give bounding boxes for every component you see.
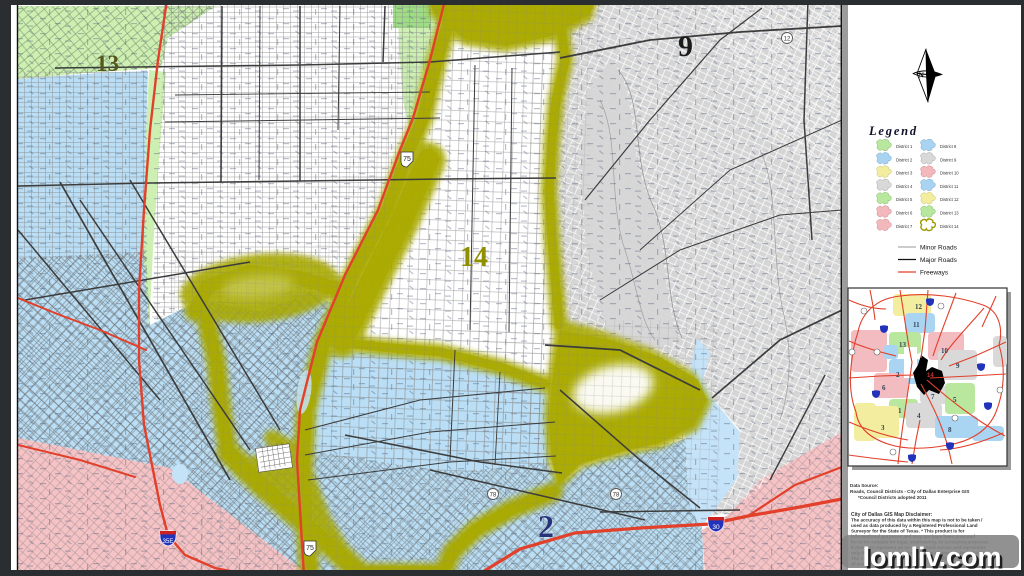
- svg-text:78: 78: [490, 493, 497, 499]
- svg-text:used as data produced by a Reg: used as data produced by a Registered Pr…: [851, 523, 978, 528]
- svg-text:13: 13: [899, 341, 907, 349]
- svg-text:2: 2: [896, 371, 900, 379]
- svg-text:District 4: District 4: [896, 184, 913, 189]
- svg-text:35E: 35E: [163, 539, 174, 545]
- svg-text:8: 8: [948, 426, 952, 434]
- svg-text:12: 12: [915, 303, 923, 311]
- svg-text:Surveyor for the State of Texa: Surveyor for the State of Texas. * This …: [851, 529, 965, 534]
- svg-text:Legend: Legend: [868, 124, 918, 138]
- svg-text:District 12: District 12: [940, 197, 959, 202]
- svg-text:District 7: District 7: [896, 224, 913, 229]
- svg-text:10: 10: [941, 347, 949, 355]
- svg-text:District 2: District 2: [896, 157, 913, 162]
- svg-text:14: 14: [460, 242, 488, 273]
- svg-text:13: 13: [96, 51, 119, 76]
- svg-text:9: 9: [678, 30, 693, 63]
- svg-text:District 3: District 3: [896, 171, 913, 176]
- svg-text:The accuracy of this data with: The accuracy of this data within this ma…: [851, 518, 983, 523]
- svg-text:12: 12: [784, 37, 791, 43]
- svg-text:District 1: District 1: [896, 144, 913, 149]
- svg-text:N: N: [919, 71, 925, 80]
- svg-text:11: 11: [913, 321, 920, 329]
- svg-text:Major Roads: Major Roads: [920, 257, 958, 264]
- svg-text:District 14: District 14: [940, 224, 959, 229]
- svg-text:District 8: District 8: [940, 144, 957, 149]
- svg-text:1: 1: [898, 407, 902, 415]
- svg-text:District 10: District 10: [940, 171, 959, 176]
- svg-text:75: 75: [403, 156, 411, 163]
- svg-text:District 6: District 6: [896, 211, 913, 216]
- svg-text:2: 2: [538, 508, 554, 544]
- svg-text:*Council Districts adopted 201: *Council Districts adopted 2011: [858, 495, 927, 500]
- svg-text:Data Source:: Data Source:: [850, 483, 879, 488]
- svg-text:Freeways: Freeways: [920, 270, 949, 277]
- svg-text:14: 14: [927, 373, 934, 379]
- svg-text:78: 78: [613, 493, 620, 499]
- svg-text:Roads, Council Districts - Cit: Roads, Council Districts - City of Dalla…: [850, 489, 969, 494]
- svg-text:3: 3: [881, 424, 885, 432]
- svg-text:Minor Roads: Minor Roads: [920, 245, 958, 252]
- svg-text:4: 4: [917, 412, 921, 420]
- svg-text:75: 75: [306, 545, 314, 552]
- svg-text:9: 9: [956, 362, 960, 370]
- svg-text:District 13: District 13: [940, 211, 959, 216]
- svg-text:7: 7: [931, 393, 935, 401]
- svg-text:lomliv.com: lomliv.com: [862, 542, 1001, 572]
- svg-text:District 11: District 11: [940, 184, 959, 189]
- svg-text:5: 5: [953, 396, 957, 404]
- svg-text:District 9: District 9: [940, 157, 957, 162]
- svg-text:6: 6: [882, 384, 886, 392]
- svg-text:District 5: District 5: [896, 197, 913, 202]
- svg-text:30: 30: [712, 524, 720, 531]
